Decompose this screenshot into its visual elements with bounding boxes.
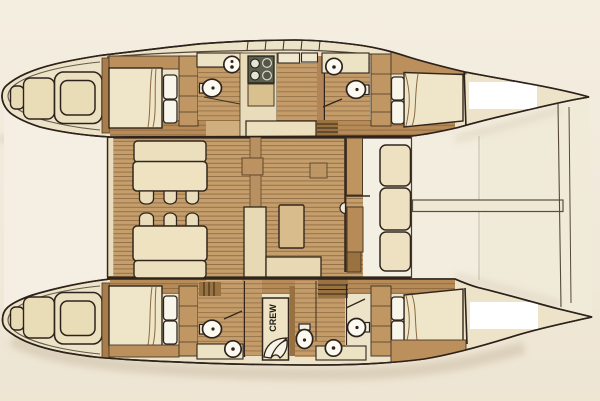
svg-text:CREW: CREW [268,304,278,332]
